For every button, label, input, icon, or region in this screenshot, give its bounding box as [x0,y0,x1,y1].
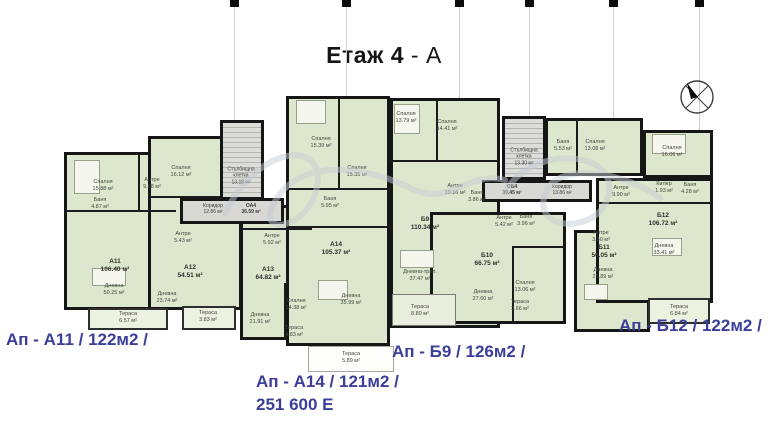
room-label: Антре 10.16 м² [445,183,466,197]
room-label: Дневна 50.25 м² [104,283,125,297]
interior-wall [138,152,140,212]
room-label: Дневна 33.41 м² [654,243,675,257]
interior-wall [64,210,176,212]
guide-line [234,7,235,120]
unit-label-b9: Б9 110.34 м² [411,216,439,232]
room-label: Антре 5.92 м² [263,233,281,247]
room-label: Дневна 21.91 м² [250,312,271,326]
compass-icon [674,74,720,120]
corridor-oa4 [180,198,284,224]
room-label: Спалня 13.08 м² [585,139,606,153]
unit-label-a11: А11 106.40 м² [101,258,130,274]
guide-line [613,7,614,118]
room-label: Антре 9.88 м² [143,177,161,191]
guide-line [529,7,530,116]
floor-plan-page: Етаж 4 - А [0,0,768,434]
dimension-tick [525,0,534,7]
unit-label-b12: Б12 106.72 м² [649,212,678,228]
room-label: Спалня 15.39 м² [311,136,332,150]
dimension-tick [695,0,704,7]
interior-wall [576,118,578,176]
interior-wall [286,188,390,190]
room-label: Дневна 23.74 м² [157,291,178,305]
room-label: Спалня 15.88 м² [93,179,114,193]
room-label: Спалня 15.35 м² [347,165,368,179]
room-label: Баня 5.95 м² [321,196,339,210]
guide-line [459,7,460,98]
room-label: Баня 4.28 м² [681,182,699,196]
room-label: Килер 1.93 м² [655,181,673,195]
room-label: Спалня 13.06 м² [515,280,536,294]
unit-label-b10: Б10 66.75 м² [474,252,499,268]
furniture-table [400,250,434,268]
room-label: Баня 4.87 м² [91,197,109,211]
furniture-bed [296,100,326,124]
stair-label: Стълбищна клетка 13.30 м² [510,148,537,167]
corridor-ob4 [482,180,592,202]
room-label: Спалня 14.38 м² [286,298,307,312]
corridor-label: Коридор 13.86 м² [552,184,572,197]
unit-label-a12: А12 54.51 м² [177,264,202,280]
room-label: Антре 5.42 м² [495,215,513,229]
interior-wall [390,160,500,162]
interior-wall [286,226,390,228]
room-label: Антре 9.90 м² [612,185,630,199]
dimension-tick [455,0,464,7]
room-label: Дневна 25.89 м² [593,267,614,281]
title-wing: - А [404,42,442,68]
interior-wall [512,246,566,248]
dimension-tick [230,0,239,7]
title-floor: Етаж 4 [326,42,404,68]
corridor-label: Коридор 12.86 м² [203,203,223,216]
caption-a14-line1: Ап - А14 / 121м2 / [256,372,399,392]
room-label: Баня 3.86 м² [468,190,486,204]
caption-b12: Ап - Б12 / 122м2 / [619,316,762,336]
staircase-a [220,120,264,200]
interior-wall [338,96,340,188]
room-label: Спалня 16.12 м² [171,165,192,179]
furniture-table [584,284,608,300]
page-title: Етаж 4 - А [0,42,768,69]
room-label: Тераса 3.83 м² [199,310,217,324]
caption-a14-price: 251 600 Е [256,395,334,415]
unit-label-a13: А13 64.82 м² [255,266,280,282]
room-label: Антре 5.43 м² [174,231,192,245]
caption-b9: Ап - Б9 / 126м2 / [392,342,525,362]
unit-label-b11: Б11 56.05 м² [591,244,616,260]
corridor-label-ob4: ОБ4 39.45 м² [502,184,521,197]
room-label: Спалня 13.79 м² [396,111,417,125]
room-label: Дневна-трап. 37.47 м² [403,269,437,283]
room-label: Тераса 3.66 м² [511,299,529,313]
dimension-tick [609,0,618,7]
room-label: Тераса 6.57 м² [119,311,137,325]
room-label: Баня 3.96 м² [517,214,535,228]
corridor-label-oa4: ОА4 36.59 м² [241,203,260,216]
room-label: Спалня 16.06 м² [662,145,683,159]
room-label: Спалня 14.41 м² [437,119,458,133]
room-label: Баня 5.53 м² [554,139,572,153]
stair-label: Стълбищна клетка 13.18 м² [227,167,254,186]
dimension-tick [342,0,351,7]
interior-wall [596,202,713,204]
room-label: Тераса 5.89 м² [342,351,360,365]
room-label: Тераса 8.80 м² [411,304,429,318]
room-label: Тераса 4.83 м² [285,325,303,339]
guide-line [346,7,347,96]
unit-label-a14: А14 105.37 м² [322,241,351,257]
room-label: Дневна 35.99 м² [341,293,362,307]
caption-a11: Ап - А11 / 122м2 / [6,330,148,350]
room-label: Антре 3.50 м² [592,230,610,244]
room-label: Дневна 27.60 м² [473,289,494,303]
interior-wall [240,228,312,230]
